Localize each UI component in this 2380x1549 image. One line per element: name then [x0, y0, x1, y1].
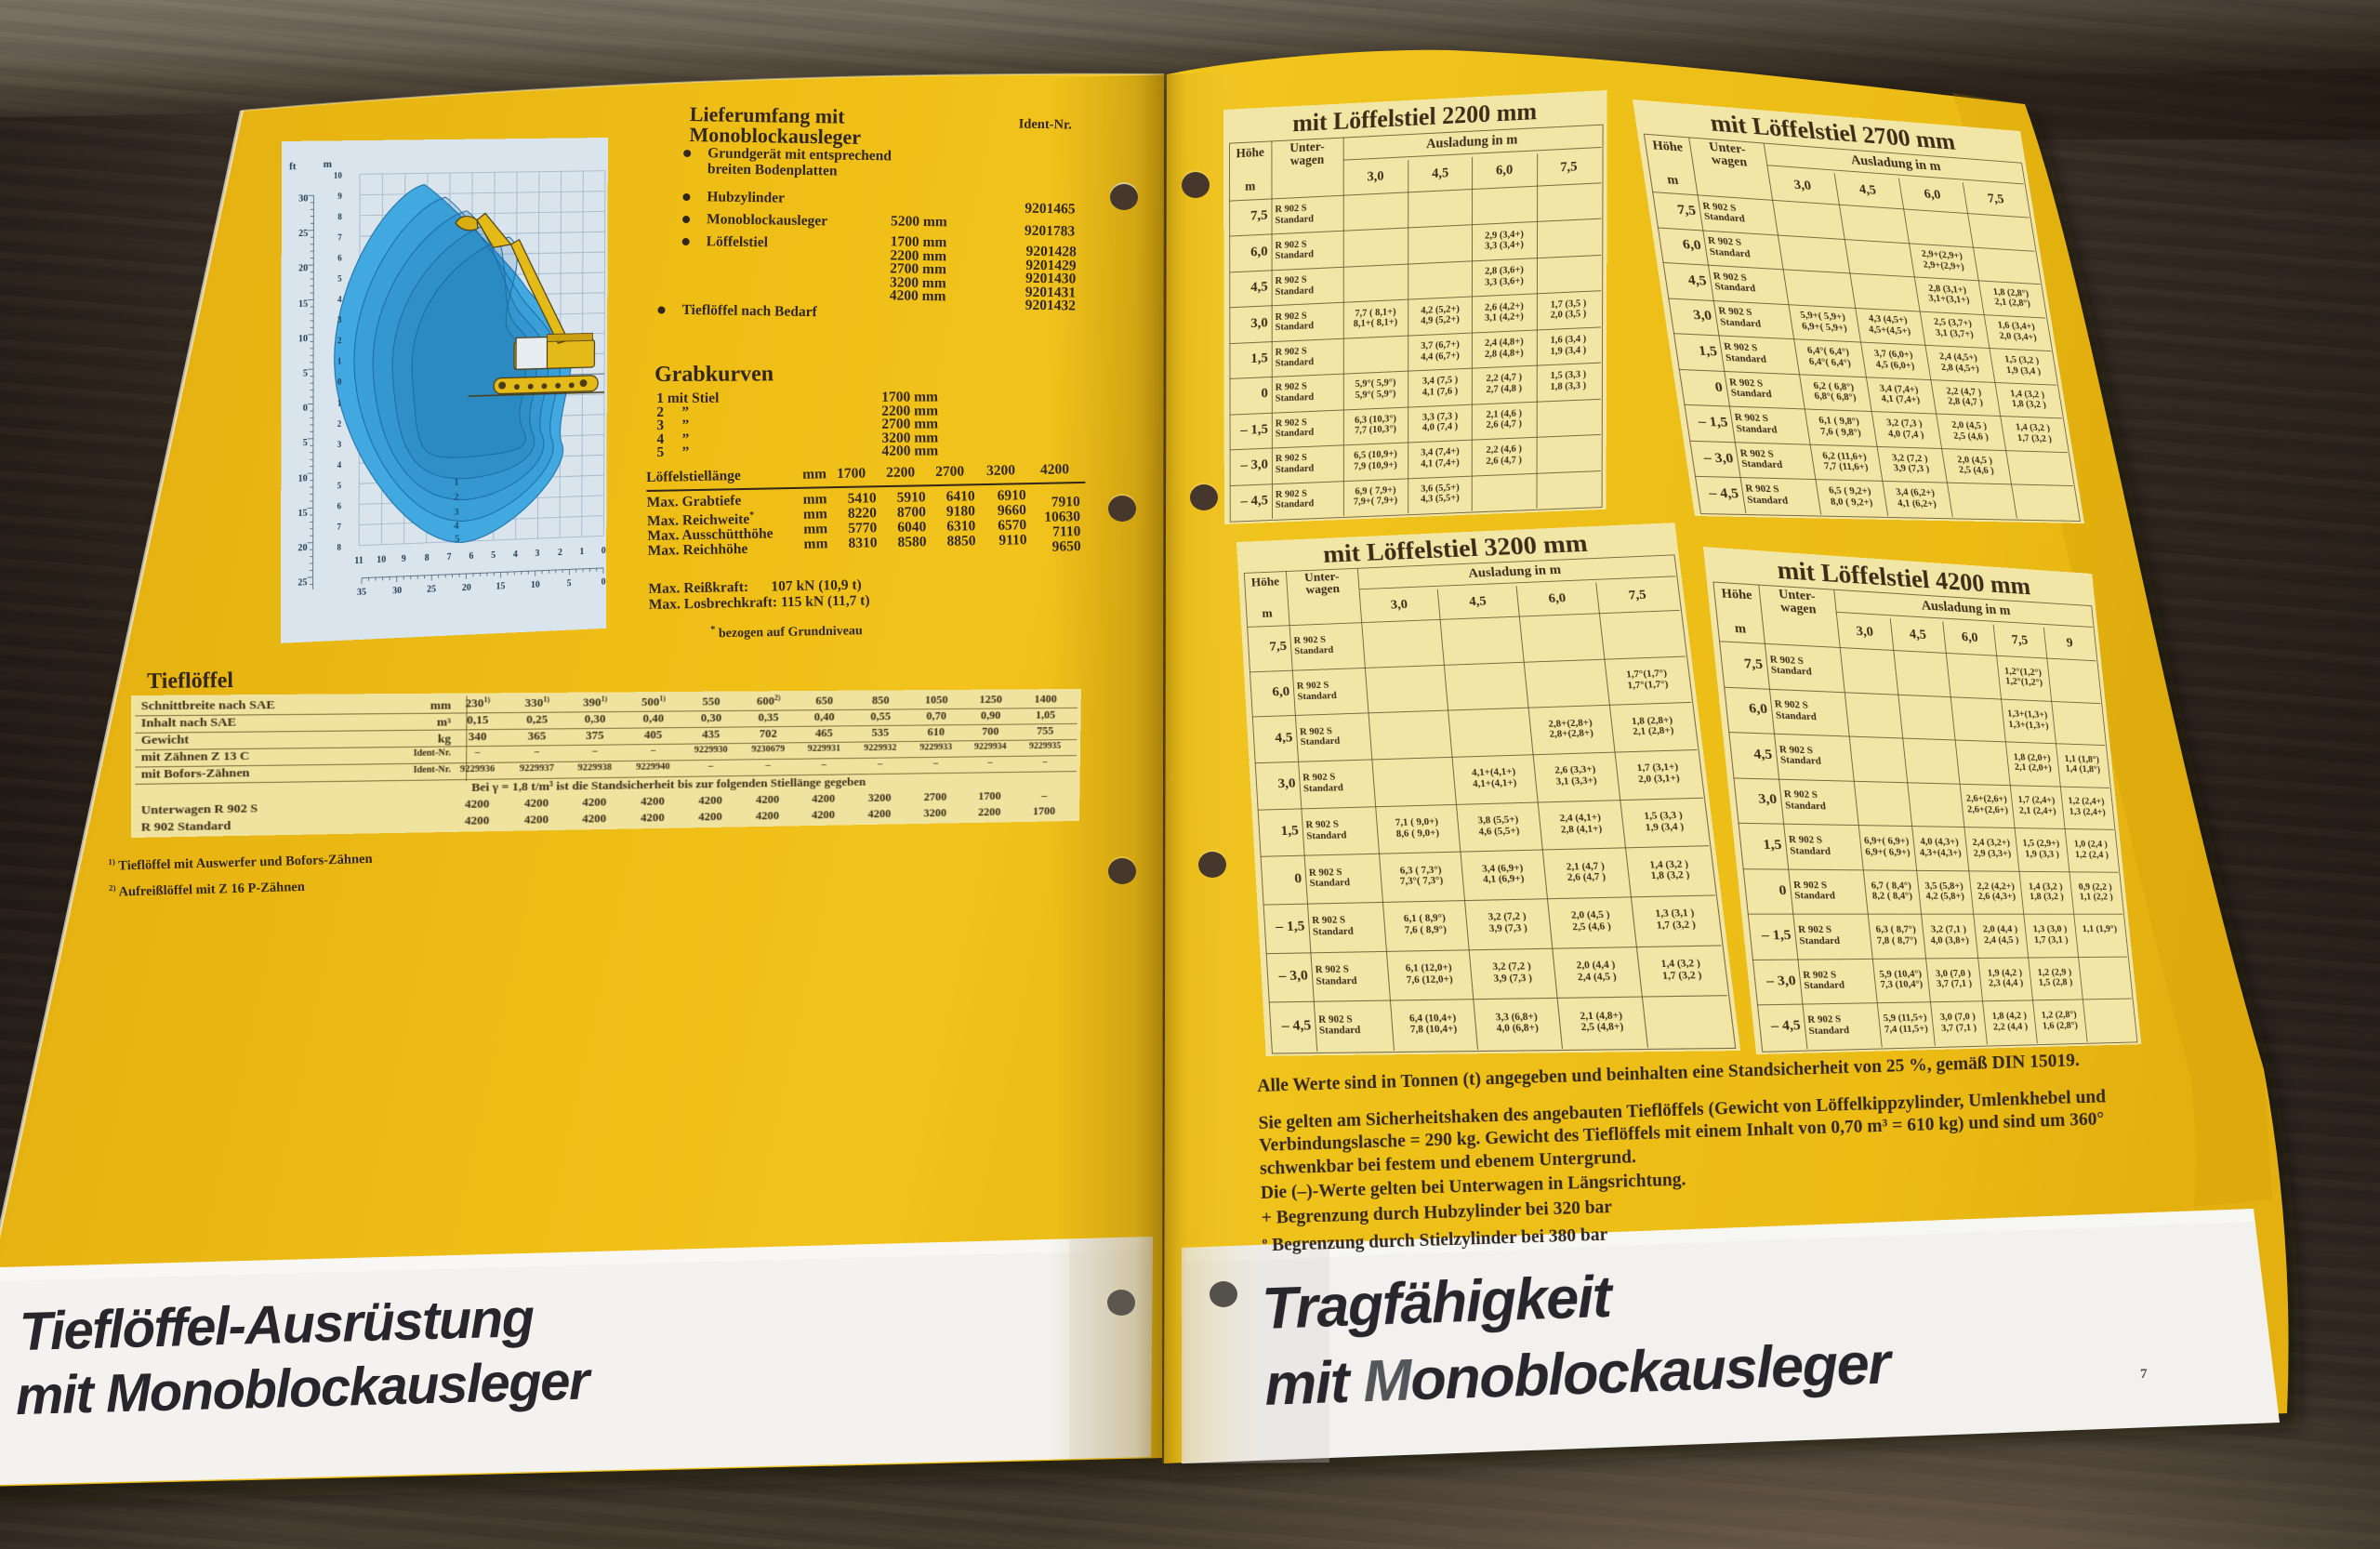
svg-text:20: 20	[298, 263, 308, 273]
svg-text:11: 11	[354, 556, 364, 566]
svg-text:10: 10	[334, 171, 342, 180]
svg-text:4: 4	[454, 521, 459, 532]
svg-text:5: 5	[303, 438, 308, 448]
svg-text:8: 8	[425, 553, 430, 563]
svg-text:ft: ft	[289, 161, 297, 172]
svg-text:1: 1	[454, 477, 459, 488]
svg-text:6: 6	[469, 551, 473, 562]
svg-text:m: m	[324, 159, 333, 170]
svg-text:20: 20	[462, 583, 471, 593]
svg-text:0: 0	[337, 377, 342, 387]
svg-text:3: 3	[337, 440, 342, 449]
svg-text:5: 5	[303, 369, 308, 379]
svg-text:10: 10	[298, 334, 308, 344]
svg-text:1: 1	[579, 547, 584, 557]
svg-text:3: 3	[535, 549, 539, 559]
svg-text:15: 15	[297, 509, 307, 519]
svg-text:5: 5	[455, 534, 460, 545]
svg-text:30: 30	[298, 194, 308, 205]
svg-text:8: 8	[337, 212, 342, 221]
svg-text:4: 4	[337, 295, 342, 304]
svg-text:0: 0	[602, 577, 606, 588]
svg-text:10: 10	[298, 474, 308, 484]
svg-text:2: 2	[454, 492, 459, 503]
svg-text:15: 15	[298, 299, 308, 310]
svg-text:5: 5	[491, 550, 496, 561]
svg-text:2: 2	[337, 419, 342, 429]
svg-text:6: 6	[337, 254, 342, 263]
svg-text:6: 6	[337, 501, 342, 510]
svg-text:25: 25	[427, 585, 436, 595]
svg-text:5: 5	[337, 274, 342, 284]
svg-text:7: 7	[337, 232, 342, 242]
svg-text:25: 25	[297, 577, 307, 588]
svg-text:3: 3	[337, 315, 342, 324]
svg-text:15: 15	[496, 581, 505, 591]
svg-text:4: 4	[337, 460, 342, 470]
svg-text:25: 25	[298, 229, 308, 239]
svg-text:10: 10	[377, 555, 386, 565]
svg-text:3: 3	[454, 507, 459, 518]
svg-text:35: 35	[357, 588, 366, 598]
svg-text:1: 1	[337, 399, 342, 408]
svg-text:7: 7	[337, 523, 341, 532]
svg-text:20: 20	[297, 543, 307, 553]
svg-text:10: 10	[531, 580, 540, 590]
svg-text:30: 30	[392, 586, 402, 596]
svg-text:2: 2	[558, 548, 562, 558]
svg-text:7: 7	[447, 552, 452, 563]
svg-text:2: 2	[337, 336, 342, 345]
svg-text:4: 4	[513, 549, 518, 560]
svg-text:8: 8	[337, 543, 341, 552]
svg-text:0: 0	[303, 404, 308, 414]
svg-text:5: 5	[567, 578, 572, 589]
svg-text:1: 1	[337, 356, 342, 365]
svg-text:5: 5	[337, 481, 342, 490]
svg-text:9: 9	[402, 554, 406, 564]
svg-text:9: 9	[337, 192, 342, 201]
